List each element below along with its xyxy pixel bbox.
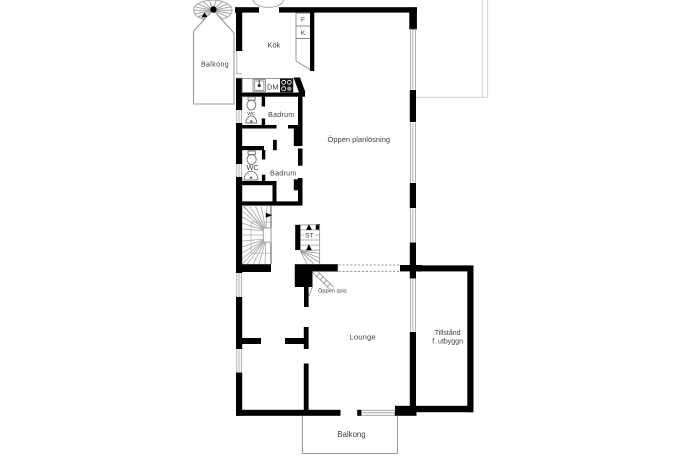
svg-text:Lounge: Lounge [349,333,375,342]
svg-text:WC: WC [247,163,260,172]
svg-text:Öppen spis: Öppen spis [318,287,347,294]
svg-text:f. utbyggn: f. utbyggn [432,339,463,346]
svg-text:Öppen planlösning: Öppen planlösning [328,135,391,144]
svg-text:Balkong: Balkong [337,430,365,439]
svg-text:Tillstånd: Tillstånd [435,329,461,337]
svg-text:K: K [301,30,306,37]
svg-text:WC: WC [247,111,256,117]
svg-text:Badrum: Badrum [270,171,296,178]
svg-text:DM: DM [267,83,279,92]
svg-text:Balkong: Balkong [201,61,229,68]
svg-text:F: F [301,17,305,24]
svg-text:Kök: Kök [268,41,281,50]
svg-text:Badrum: Badrum [268,112,294,119]
svg-text:ST: ST [305,233,313,240]
